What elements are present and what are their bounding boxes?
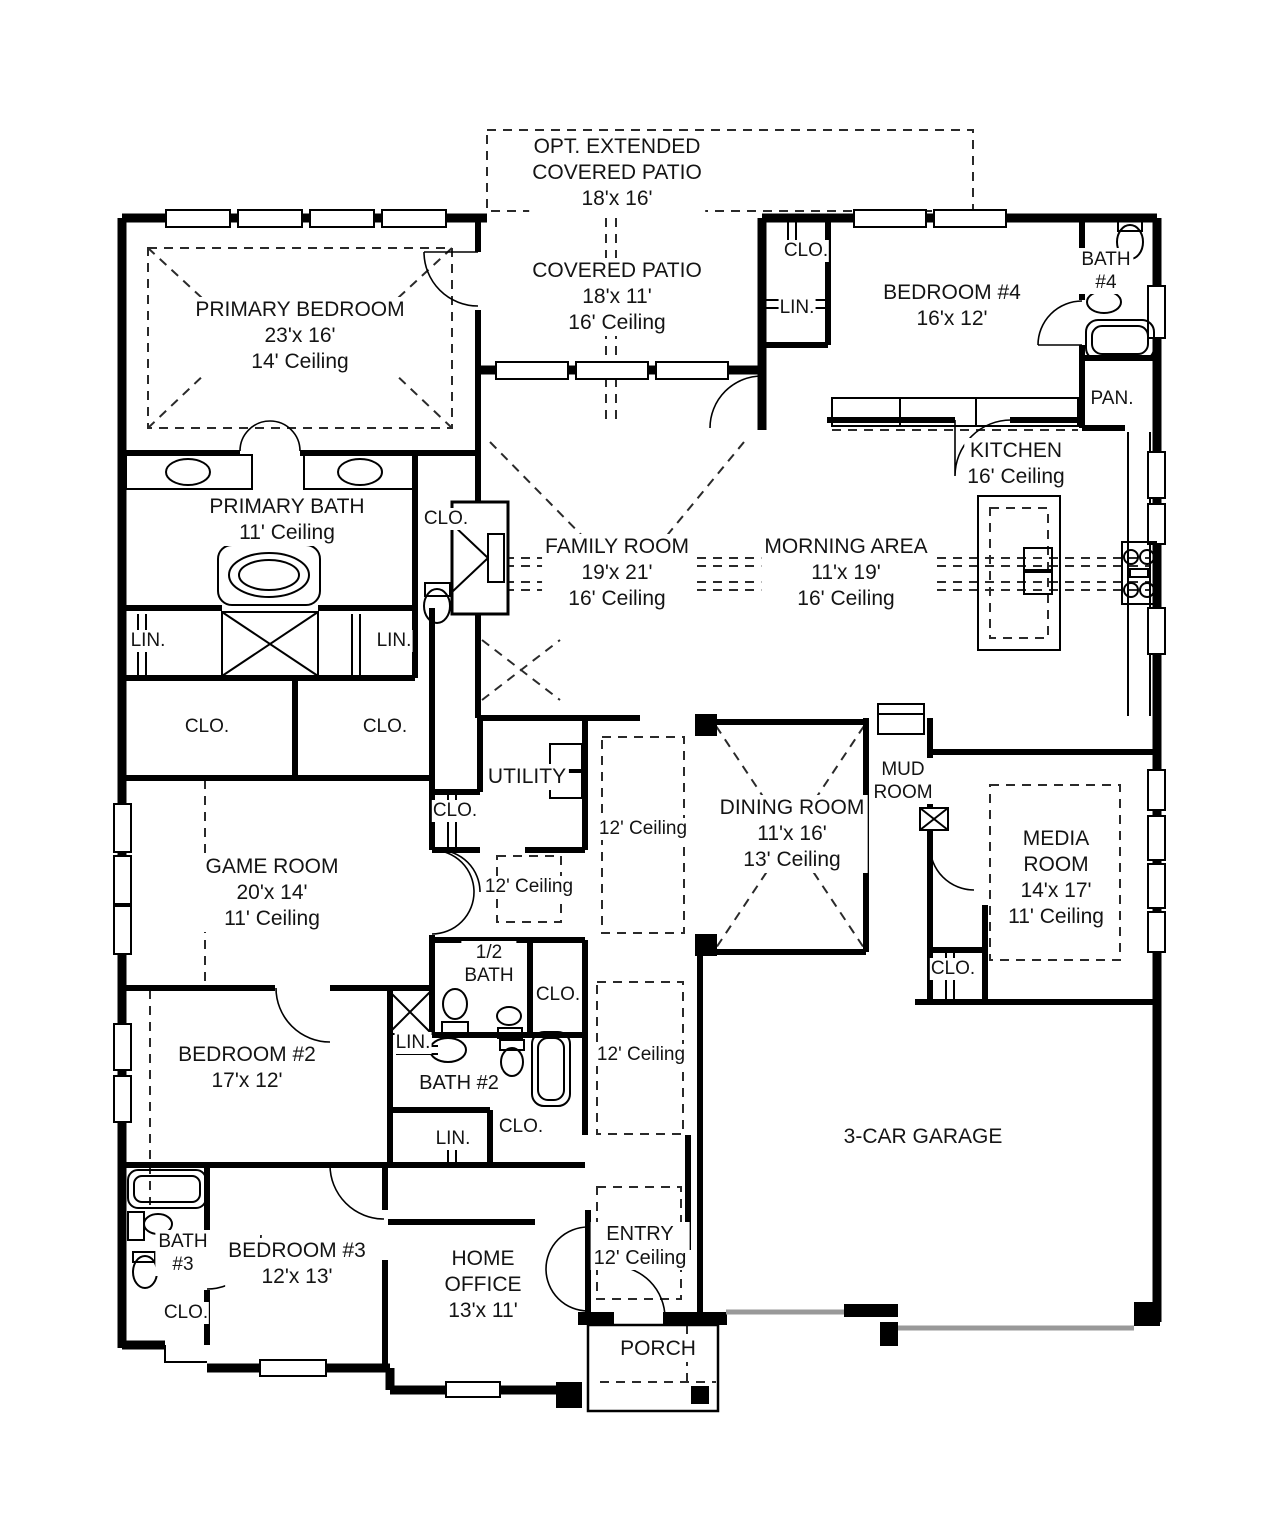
room-label-game-room: GAME ROOM 20'x 14' 11' Ceiling — [202, 854, 341, 932]
clo-label-media: CLO. — [930, 958, 976, 980]
dining-ceiling: 13' Ceiling — [720, 847, 865, 873]
room-label-bedroom2: BEDROOM #2 17'x 12' — [175, 1042, 319, 1094]
ceiling12-label-entry-hall: 12' Ceiling — [596, 1044, 686, 1066]
half-bath-name: 1/2 — [464, 941, 513, 964]
lin-label-bath2-top: LIN. — [395, 1032, 432, 1054]
primary-bathtub-fixture — [218, 545, 320, 605]
utility-name: UTILITY — [488, 764, 566, 790]
door-arcs — [207, 252, 1082, 1318]
window-glyphs — [114, 210, 1165, 1397]
room-label-bath3: BATH #3 — [155, 1230, 210, 1276]
bedroom4-dims: 16'x 12' — [883, 306, 1021, 332]
clo-label-half-bath: CLO. — [535, 984, 581, 1006]
porch-name: PORCH — [620, 1336, 696, 1362]
room-label-primary-bedroom: PRIMARY BEDROOM 23'x 16' 14' Ceiling — [192, 297, 407, 375]
primary-bedroom-dims: 23'x 16' — [195, 323, 404, 349]
clo-label-bath2: CLO. — [498, 1116, 544, 1138]
mud-room-name: MUD — [873, 758, 932, 781]
bath3-number: #3 — [158, 1253, 207, 1276]
game-room-name: GAME ROOM — [205, 854, 338, 880]
primary-toilet-fixture — [424, 583, 450, 623]
morning-area-dims: 11'x 19' — [764, 560, 927, 586]
family-room-name: FAMILY ROOM — [545, 534, 689, 560]
bath4-name: BATH — [1081, 248, 1130, 271]
primary-bedroom-name: PRIMARY BEDROOM — [195, 297, 404, 323]
game-room-dims: 20'x 14' — [205, 880, 338, 906]
opt-patio-name2: COVERED PATIO — [532, 160, 702, 186]
covered-patio-ceiling: 16' Ceiling — [532, 310, 702, 336]
media-room-ceiling: 11' Ceiling — [1008, 904, 1104, 930]
kitchen-ceiling: 16' Ceiling — [967, 464, 1064, 490]
room-label-morning-area: MORNING AREA 11'x 19' 16' Ceiling — [761, 534, 930, 612]
media-room-name2: ROOM — [1008, 852, 1104, 878]
half-bath-name2: BATH — [464, 964, 513, 987]
bedroom4-name: BEDROOM #4 — [883, 280, 1021, 306]
dining-dims: 11'x 16' — [720, 821, 865, 847]
interior-walls — [122, 218, 1157, 1368]
media-room-name: MEDIA — [1008, 826, 1104, 852]
morning-area-ceiling: 16' Ceiling — [764, 586, 927, 612]
clo-label-primary-left: CLO. — [184, 716, 230, 738]
attic-access-box — [920, 808, 948, 830]
room-label-porch: PORCH — [617, 1336, 699, 1362]
clo-label-primary-right: CLO. — [362, 716, 408, 738]
pan-label: PAN. — [1090, 388, 1135, 410]
lin-label-primary-left: LIN. — [130, 630, 167, 652]
home-office-dims: 13'x 11' — [445, 1298, 522, 1324]
dining-name: DINING ROOM — [720, 795, 865, 821]
clo-label-bath3: CLO. — [163, 1302, 209, 1324]
covered-patio-name: COVERED PATIO — [532, 258, 702, 284]
lin-label-primary-right: LIN. — [376, 630, 413, 652]
garage-door-lines — [726, 1312, 1134, 1328]
family-room-dims: 19'x 21' — [545, 560, 689, 586]
room-label-utility: UTILITY — [485, 764, 569, 790]
bath4-number: #4 — [1081, 271, 1130, 294]
primary-bedroom-ceiling: 14' Ceiling — [195, 349, 404, 375]
ceiling12-label-hall-small: 12' Ceiling — [484, 876, 574, 898]
room-label-mud-room: MUD ROOM — [870, 758, 935, 804]
media-room-dims: 14'x 17' — [1008, 878, 1104, 904]
lin-label-bath2-bottom: LIN. — [435, 1128, 472, 1150]
clo-label-bedroom4: CLO. — [783, 240, 829, 262]
home-office-name2: OFFICE — [445, 1272, 522, 1298]
bedroom2-dims: 17'x 12' — [178, 1068, 316, 1094]
bedroom2-name: BEDROOM #2 — [178, 1042, 316, 1068]
floor-plan-page: OPT. EXTENDED COVERED PATIO 18'x 16' COV… — [0, 0, 1281, 1536]
opt-patio-dims: 18'x 16' — [532, 186, 702, 212]
room-label-half-bath: 1/2 BATH — [461, 941, 516, 987]
exterior-walls — [122, 218, 1157, 1390]
bedroom3-name: BEDROOM #3 — [228, 1238, 366, 1264]
bath3-name: BATH — [158, 1230, 207, 1253]
opt-patio-name: OPT. EXTENDED — [532, 134, 702, 160]
mud-room-name2: ROOM — [873, 781, 932, 804]
room-label-opt-patio: OPT. EXTENDED COVERED PATIO 18'x 16' — [529, 134, 705, 212]
primary-vanity-sinks — [126, 455, 416, 489]
room-label-covered-patio: COVERED PATIO 18'x 11' 16' Ceiling — [529, 258, 705, 336]
clo-label-fireplace: CLO. — [423, 508, 469, 530]
room-label-dining: DINING ROOM 11'x 16' 13' Ceiling — [717, 795, 868, 873]
room-label-entry: ENTRY 12' Ceiling — [591, 1222, 690, 1270]
lin-label-bedroom4: LIN. — [779, 297, 816, 319]
room-label-primary-bath: PRIMARY BATH 11' Ceiling — [206, 494, 367, 546]
bedroom3-dims: 12'x 13' — [228, 1264, 366, 1290]
room-label-home-office: HOME OFFICE 13'x 11' — [442, 1246, 525, 1324]
ceiling12-label-hall-tall: 12' Ceiling — [598, 818, 688, 840]
half-bath-fixtures — [388, 989, 522, 1038]
garage-name: 3-CAR GARAGE — [844, 1124, 1003, 1150]
family-room-ceiling: 16' Ceiling — [545, 586, 689, 612]
room-label-bedroom3: BEDROOM #3 12'x 13' — [225, 1238, 369, 1290]
clo-label-utility: CLO. — [432, 800, 478, 822]
room-label-bedroom4: BEDROOM #4 16'x 12' — [880, 280, 1024, 332]
room-label-kitchen: KITCHEN 16' Ceiling — [964, 438, 1067, 490]
primary-shower-fixture — [222, 612, 318, 676]
home-office-name: HOME — [445, 1246, 522, 1272]
morning-area-name: MORNING AREA — [764, 534, 927, 560]
room-label-family-room: FAMILY ROOM 19'x 21' 16' Ceiling — [542, 534, 692, 612]
entry-name: ENTRY — [594, 1222, 687, 1246]
room-label-bath4: BATH #4 — [1078, 248, 1133, 294]
room-label-garage: 3-CAR GARAGE — [841, 1124, 1006, 1150]
entry-ceiling: 12' Ceiling — [594, 1246, 687, 1270]
game-room-ceiling: 11' Ceiling — [205, 906, 338, 932]
primary-bath-ceiling: 11' Ceiling — [209, 520, 364, 546]
covered-patio-dims: 18'x 11' — [532, 284, 702, 310]
bath2-name: BATH #2 — [419, 1070, 499, 1096]
room-label-bath2: BATH #2 — [416, 1070, 502, 1096]
kitchen-name: KITCHEN — [967, 438, 1064, 464]
counters-and-shelves — [138, 222, 1150, 1362]
room-label-media-room: MEDIA ROOM 14'x 17' 11' Ceiling — [1005, 826, 1107, 930]
primary-bath-name: PRIMARY BATH — [209, 494, 364, 520]
